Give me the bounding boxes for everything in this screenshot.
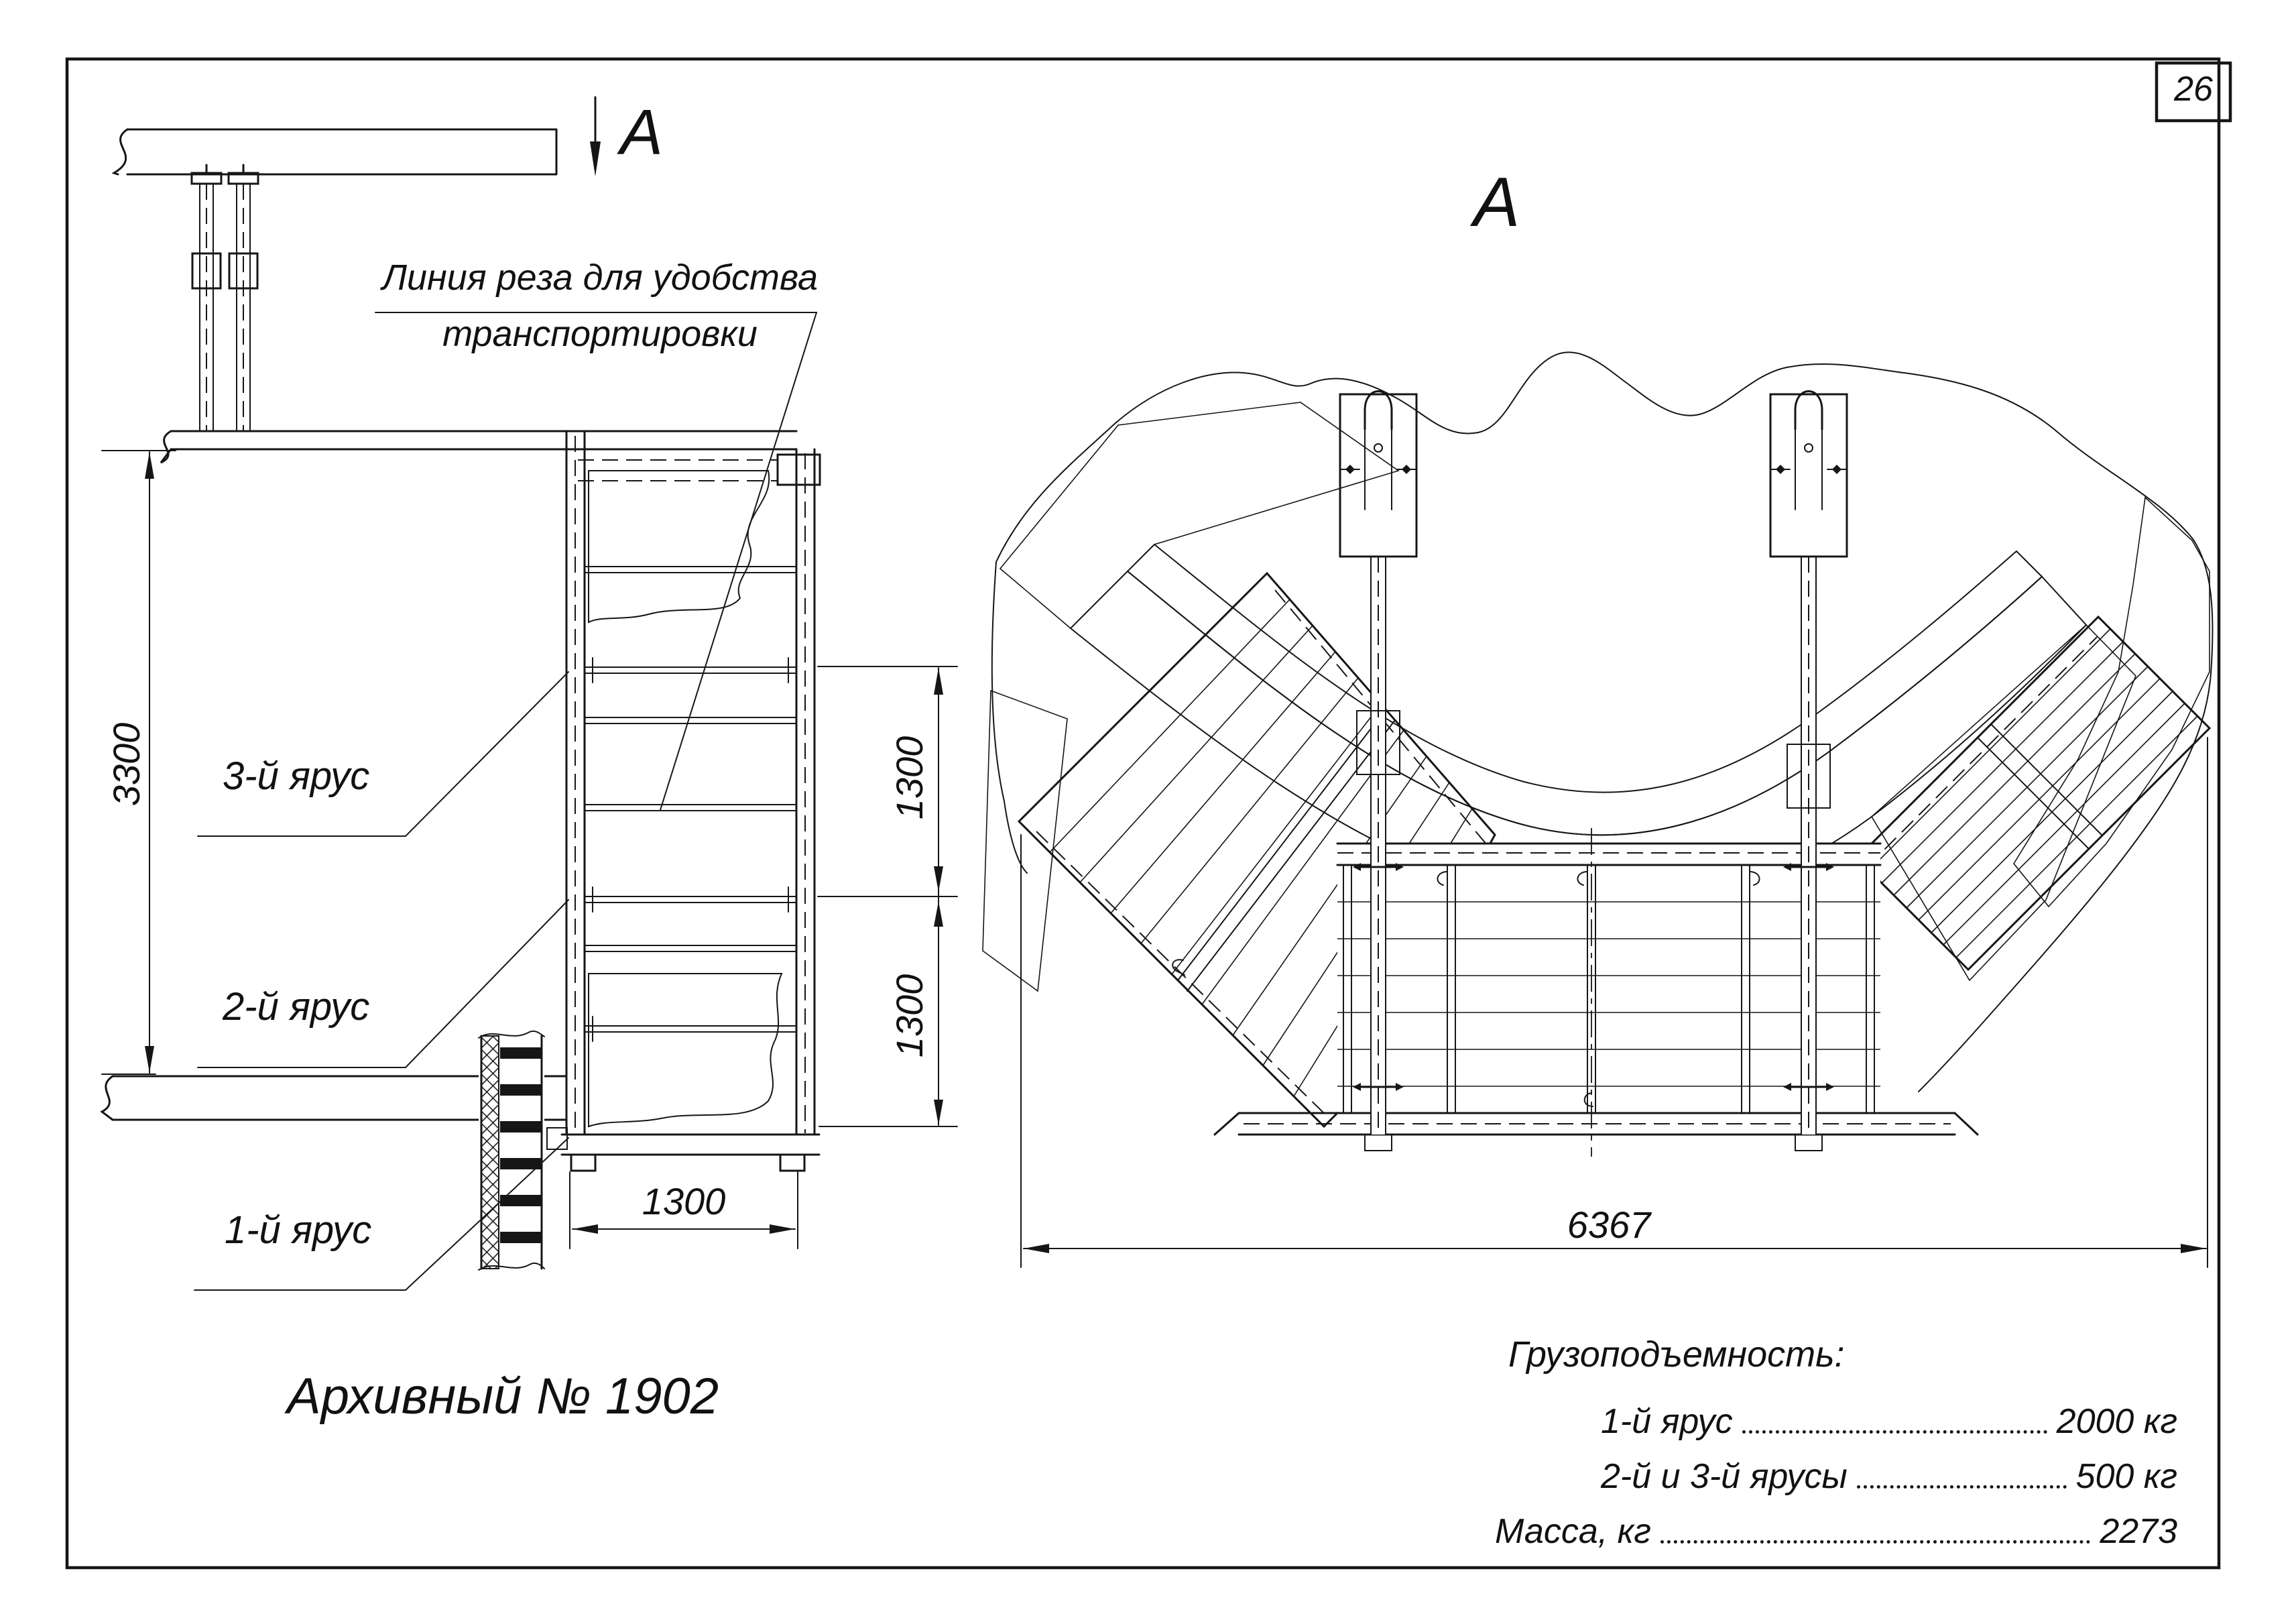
cut-note-line1: Линия реза для удобства — [362, 259, 838, 297]
cut-note-line2: транспортировки — [362, 315, 838, 353]
dim-1300-upper-text: 1300 — [890, 691, 933, 865]
insulated-pipe — [479, 1031, 544, 1270]
tier2-label: 2-й ярус — [223, 987, 369, 1028]
dim-1300-lower-text: 1300 — [890, 929, 933, 1103]
specs-row-tier23: 2-й и 3-й ярусы 500 кг — [1601, 1456, 2177, 1497]
specs-row-mass: Масса, кг 2273 — [1495, 1511, 2177, 1552]
view-label: A — [1473, 166, 1520, 239]
dim-6367-text: 6367 — [1522, 1206, 1696, 1245]
dotted-leader — [1857, 1485, 2067, 1489]
tier3-label: 3-й ярус — [223, 756, 369, 797]
rock-hatch-left — [1000, 402, 1398, 628]
right-wing — [1857, 617, 2210, 970]
central-platform — [1215, 828, 1978, 1157]
specs-row-tier23-value: 500 кг — [2076, 1456, 2177, 1497]
dim-1300-right — [818, 666, 957, 1126]
dim-1300-bottom-text: 1300 — [597, 1182, 771, 1222]
dotted-leader — [1742, 1430, 2047, 1434]
dim-3300-text: 3300 — [107, 677, 150, 852]
specs-row-tier23-label: 2-й и 3-й ярусы — [1601, 1456, 1848, 1497]
specs-row-tier1: 1-й ярус 2000 кг — [1601, 1401, 2177, 1442]
rock-speckle-left — [983, 691, 1067, 991]
drawing-sheet: 26 A A Линия реза для удобства транспорт… — [0, 0, 2296, 1624]
specs-row-mass-value: 2273 — [2100, 1511, 2177, 1552]
specs-title: Грузоподъемность: — [1508, 1336, 1844, 1374]
plan-view-A — [983, 352, 2213, 1267]
page-number: 26 — [2157, 71, 2230, 108]
hanger-rods-elevation — [192, 165, 258, 431]
tier1-label: 1-й ярус — [225, 1210, 371, 1251]
mesh-panel-bottom — [589, 974, 782, 1126]
specs-row-tier1-label: 1-й ярус — [1601, 1401, 1733, 1442]
tower-rails — [585, 567, 796, 1041]
specs-row-tier1-value: 2000 кг — [2057, 1401, 2177, 1442]
archive-number: Архивный № 1902 — [287, 1370, 719, 1424]
dotted-leader — [1660, 1540, 2090, 1544]
mesh-panel-top — [589, 471, 769, 622]
section-marker-label: A — [620, 99, 663, 167]
specs-row-mass-label: Масса, кг — [1495, 1511, 1651, 1552]
